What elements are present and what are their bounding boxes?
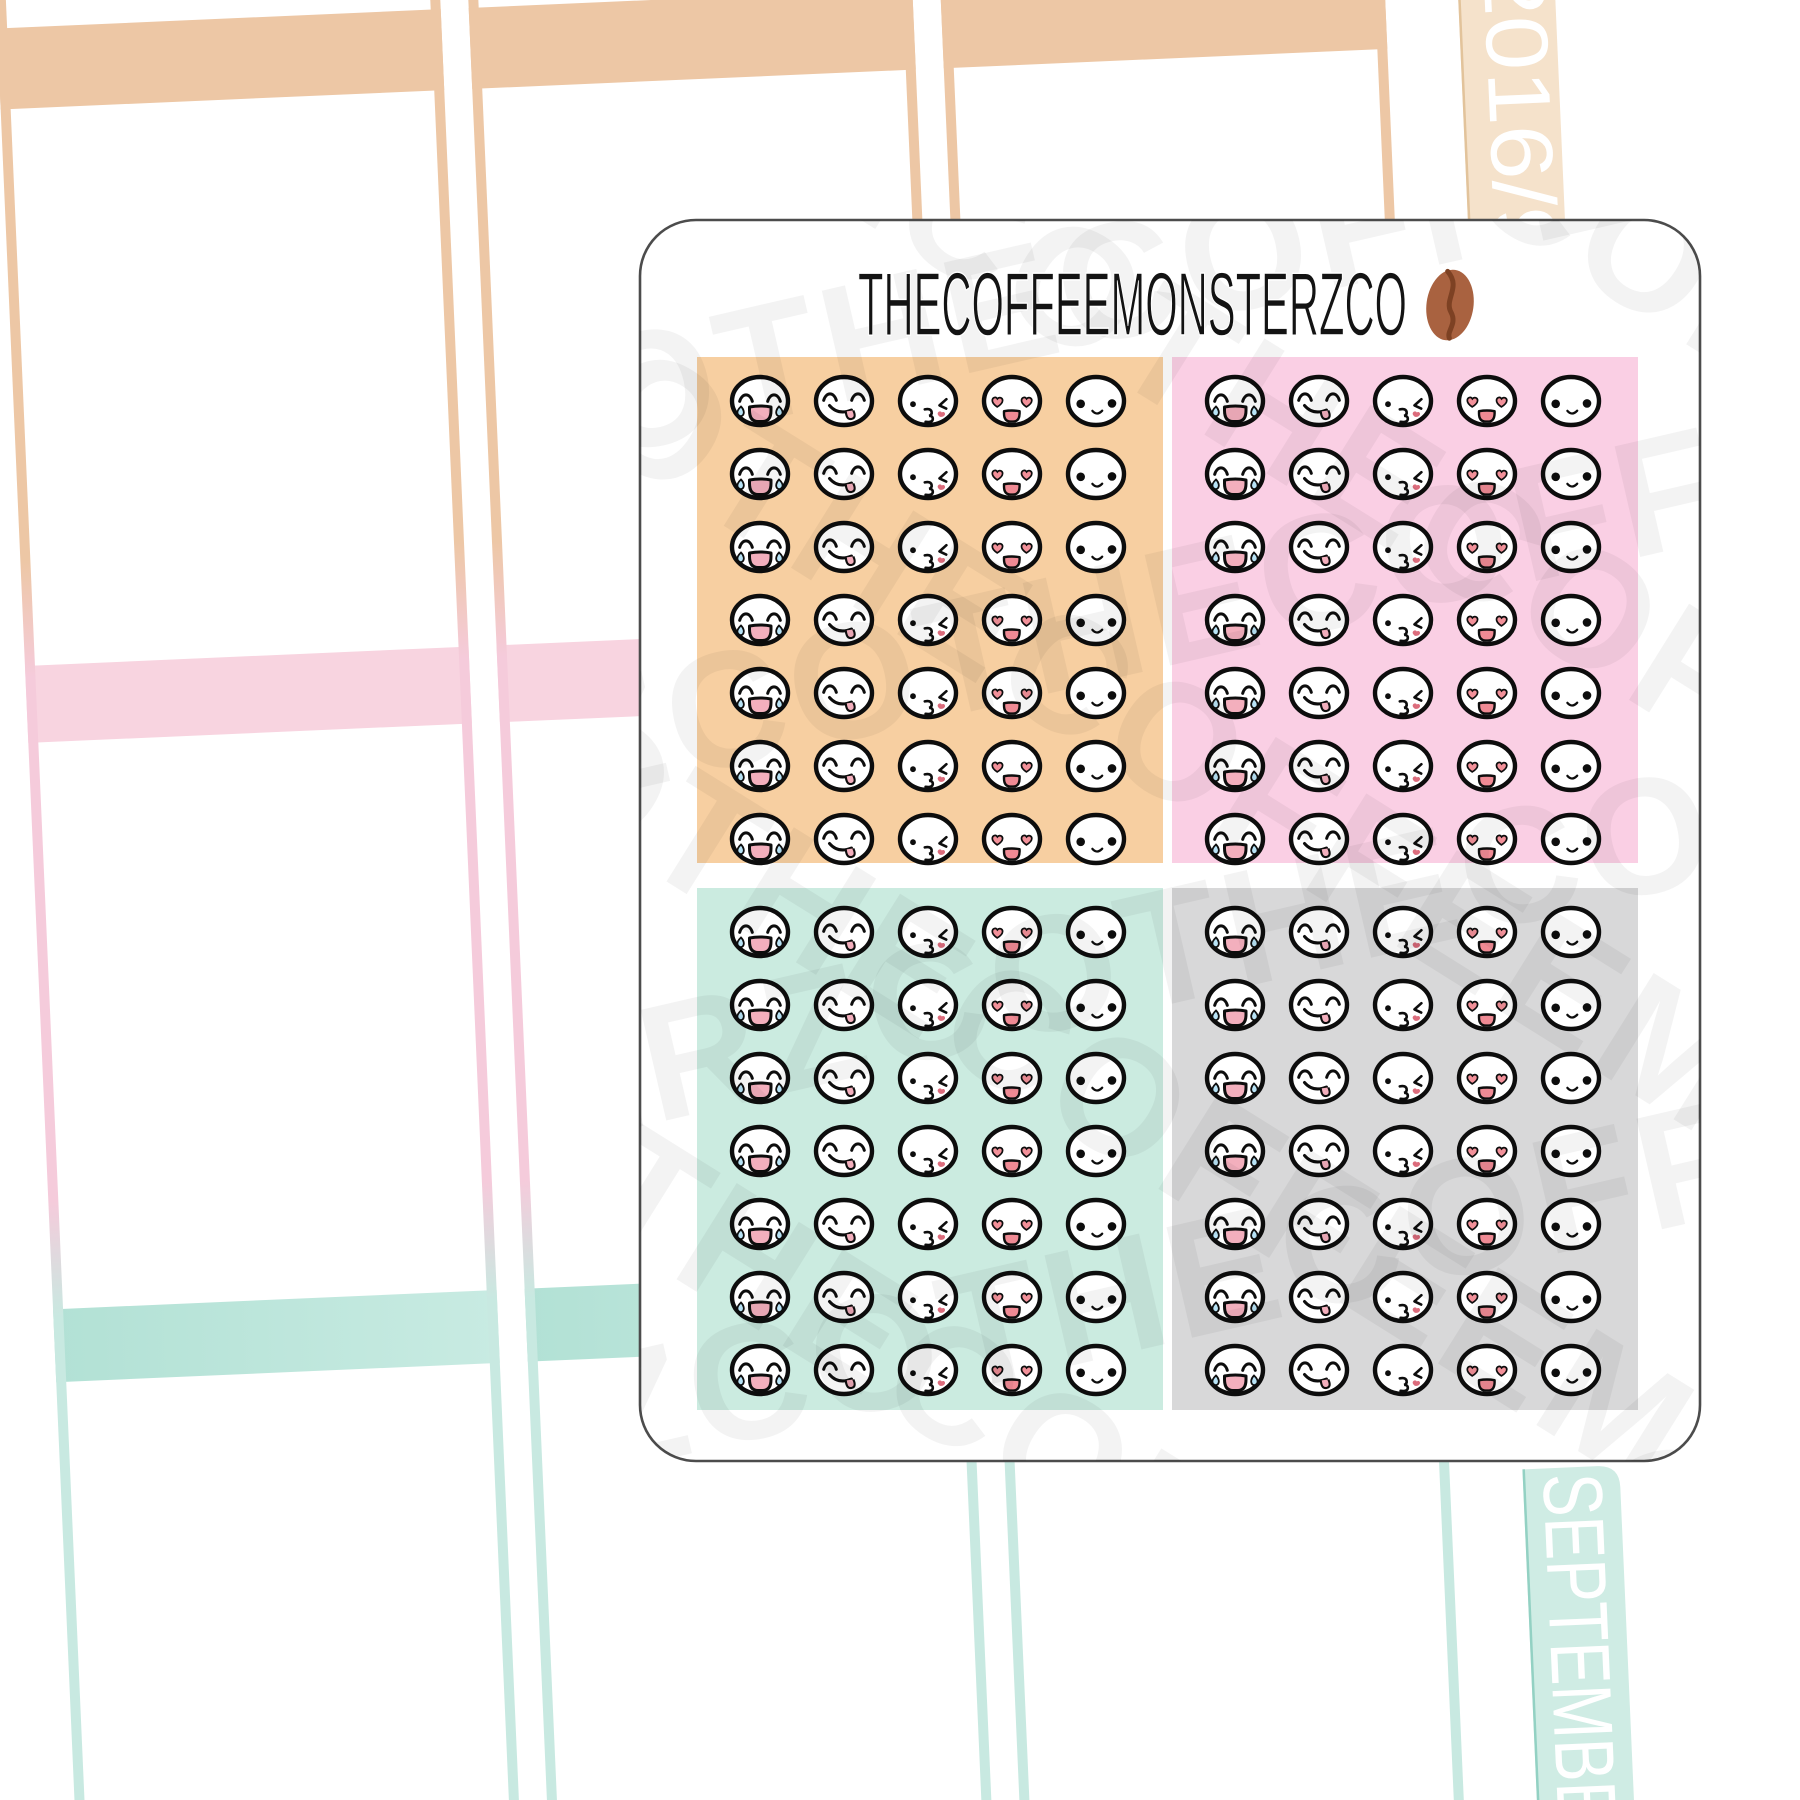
svg-text:THECOFFEEMONSTERZCO: THECOFFEEMONSTERZCO xyxy=(858,255,1407,355)
svg-text:SEPTEMBER: SEPTEMBER xyxy=(1525,1471,1636,1800)
